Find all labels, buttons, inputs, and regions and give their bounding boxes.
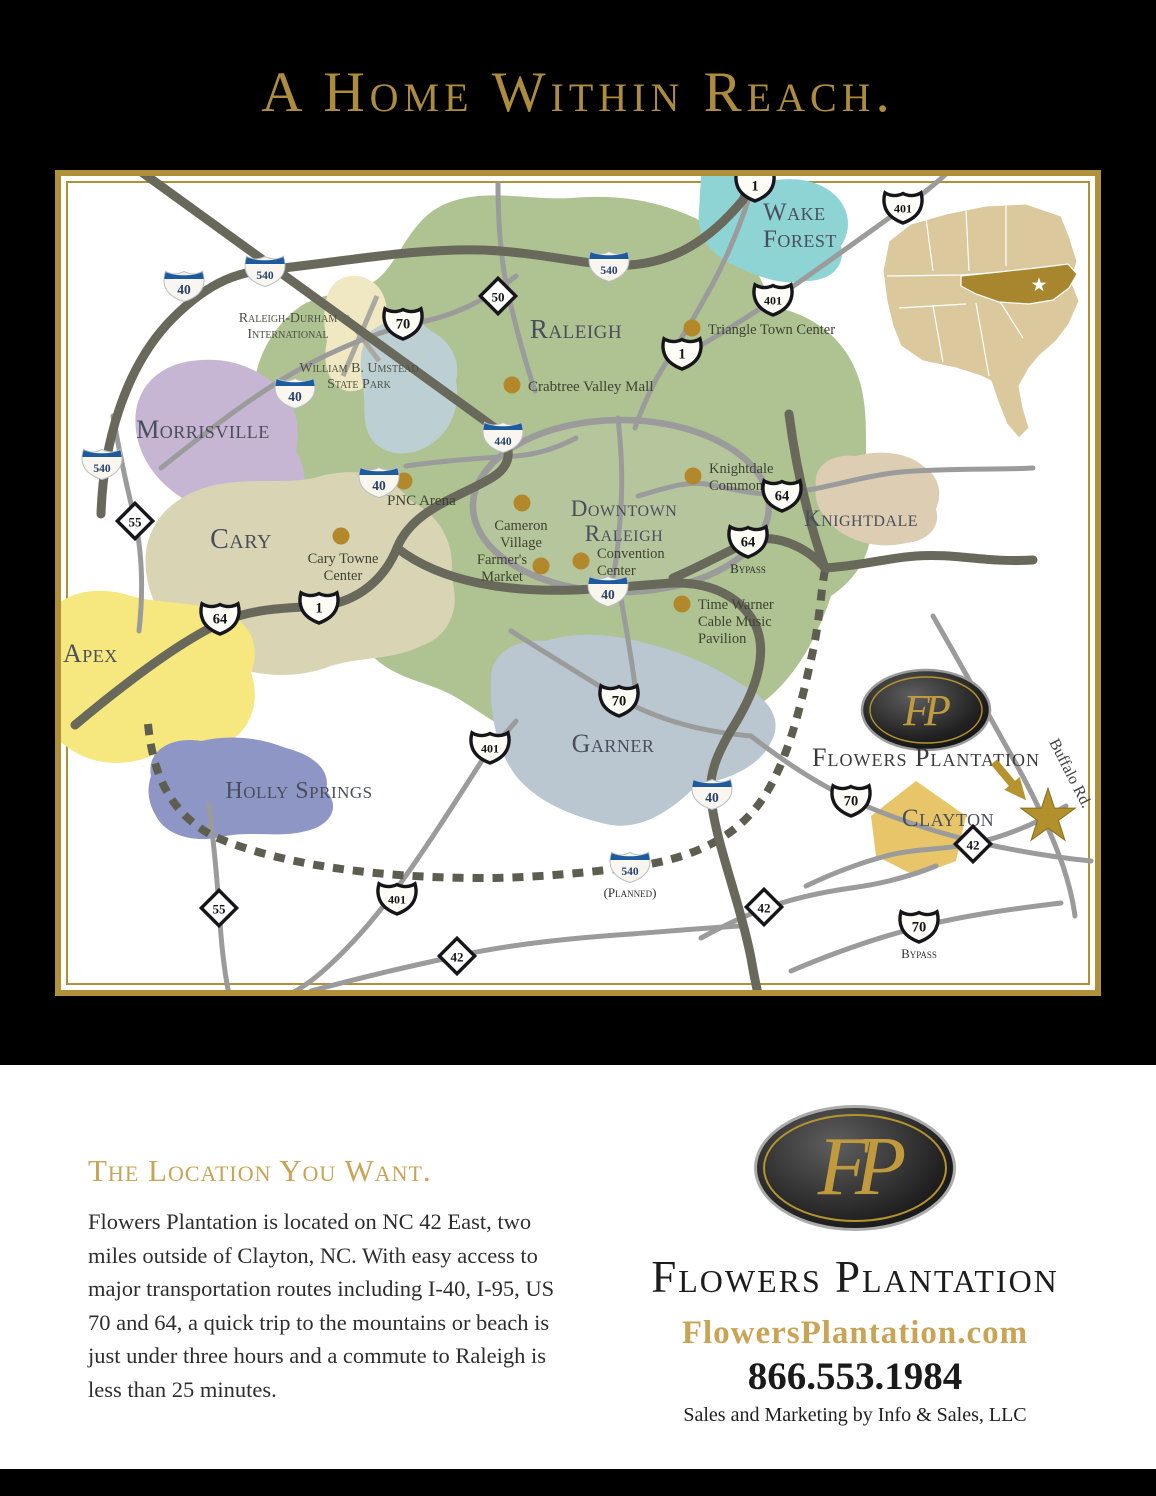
interstate-shield-40: 40 — [692, 779, 732, 809]
shield-sub-label: Bypass — [730, 561, 766, 576]
city-label: Raleigh — [585, 521, 663, 546]
shield-number: 540 — [256, 270, 274, 282]
interstate-shield-540: 540 — [82, 449, 122, 479]
poi-dot-icon — [514, 495, 531, 512]
shield-number: 64 — [741, 535, 756, 551]
location-block: The Location You Want. Flowers Plantatio… — [88, 1153, 568, 1406]
inset-land — [883, 204, 1079, 438]
poi-dot-icon — [533, 558, 550, 575]
shield-number: 1 — [315, 601, 322, 617]
shield-number: 1 — [678, 347, 685, 363]
poi-label: Market — [481, 569, 523, 585]
fp-map-label: Flowers Plantation — [812, 743, 1040, 772]
area-map: RaleighWakeForestMorrisvilleCaryApexHoll… — [61, 176, 1095, 990]
poi-dot-icon — [504, 377, 521, 394]
shield-number: 401 — [388, 893, 406, 907]
shield-number: 401 — [764, 294, 782, 308]
area-label: State Park — [327, 377, 392, 392]
nc-route-shield-55: 55 — [117, 503, 152, 538]
fp-monogram: FP — [902, 686, 950, 735]
city-label: Raleigh — [530, 314, 622, 344]
city-label: Garner — [572, 729, 655, 758]
interstate-shield-540: 540(Planned) — [604, 852, 657, 900]
shield-number: 1 — [751, 179, 758, 195]
brand-name: Flowers Plantation — [620, 1251, 1090, 1303]
city-label: Cary — [210, 524, 272, 555]
shield-number: 42 — [758, 901, 771, 916]
poi-label: Crabtree Valley Mall — [528, 379, 654, 395]
poi-label: Cameron — [494, 518, 548, 534]
poi-label: Center — [324, 568, 363, 584]
shield-number: 70 — [844, 794, 859, 810]
poi-label: PNC Arena — [387, 493, 456, 509]
shield-number: 401 — [894, 202, 912, 216]
shield-number: 540 — [600, 265, 618, 277]
page-title: A Home Within Reach. — [0, 60, 1156, 125]
shield-number: 64 — [775, 489, 790, 505]
poi-label: Convention — [597, 546, 665, 562]
shield-number: 440 — [494, 436, 512, 448]
city-label: Morrisville — [136, 415, 270, 444]
poi-dot-icon — [685, 468, 702, 485]
shield-number: 64 — [213, 612, 228, 628]
poi-dot-icon — [684, 320, 701, 337]
area-label: Raleigh-Durham — [239, 311, 338, 326]
poi-label: Cary Towne — [308, 551, 379, 567]
poi-dot-icon — [674, 596, 691, 613]
shield-number: 540 — [93, 463, 111, 475]
shield-sub-label: Bypass — [901, 946, 937, 961]
location-heading: The Location You Want. — [88, 1153, 568, 1189]
shield-number: 55 — [213, 902, 227, 917]
area-label: International — [247, 327, 328, 342]
fp-logo: FP — [754, 1105, 956, 1231]
nc-route-shield-42: 42 — [746, 889, 781, 924]
shield-number: 42 — [451, 950, 464, 965]
interstate-shield-540: 540 — [245, 256, 285, 286]
shield-number: 401 — [481, 742, 499, 756]
shield-number: 40 — [177, 282, 191, 297]
shield-number: 40 — [288, 389, 302, 404]
shield-number: 42 — [967, 838, 980, 853]
poi-label: Village — [500, 535, 542, 551]
shield-number: 40 — [601, 587, 615, 602]
shield-number: 40 — [705, 790, 719, 805]
map-panel: RaleighWakeForestMorrisvilleCaryApexHoll… — [55, 170, 1101, 996]
city-label: Forest — [763, 226, 837, 253]
poi-label: Knightdale — [709, 461, 773, 477]
poi-label: Pavilion — [698, 631, 747, 647]
inset-map — [883, 204, 1079, 438]
sales-line: Sales and Marketing by Info & Sales, LLC — [620, 1404, 1090, 1427]
road-label: Buffalo Rd. — [1045, 736, 1094, 811]
nc-route-shield-42: 42 — [439, 938, 474, 973]
shield-number: 540 — [621, 866, 639, 878]
page: A Home Within Reach. — [0, 0, 1156, 1496]
city-label: Downtown — [571, 496, 678, 521]
poi-label: Center — [597, 563, 636, 579]
phone-number: 866.553.1984 — [620, 1354, 1090, 1399]
brand-block: FP Flowers Plantation FlowersPlantation.… — [620, 1065, 1090, 1427]
poi-label: Cable Music — [698, 614, 772, 630]
city-label: Apex — [63, 639, 118, 668]
us-route-shield-70: 70 — [832, 786, 870, 816]
shield-number: 50 — [492, 290, 505, 305]
poi-label: Commons — [709, 478, 769, 494]
city-label: Holly Springs — [225, 778, 372, 804]
location-paragraph: Flowers Plantation is located on NC 42 E… — [88, 1205, 560, 1406]
area-label: William B. Umstead — [299, 361, 418, 376]
shield-number: 70 — [912, 920, 927, 936]
shield-number: 40 — [372, 478, 386, 493]
poi-label: Farmer's — [477, 552, 527, 568]
poi-label: Time Warner — [698, 597, 774, 613]
city-label: Wake — [763, 199, 826, 226]
poi-dot-icon — [573, 553, 590, 570]
nc-route-shield-55: 55 — [201, 890, 236, 925]
city-label: Clayton — [902, 805, 994, 832]
shield-sub-label: (Planned) — [604, 885, 657, 900]
bottom-section: The Location You Want. Flowers Plantatio… — [0, 1065, 1156, 1469]
us-route-shield-70: 70Bypass — [900, 912, 938, 961]
shield-number: 70 — [396, 317, 411, 333]
shield-number: 70 — [612, 694, 627, 710]
fp-logo-monogram: FP — [757, 1104, 953, 1230]
us-route-shield-401: 401 — [471, 733, 509, 763]
city-label: Knightdale — [804, 506, 918, 531]
shield-number: 55 — [129, 515, 143, 530]
poi-label: Triangle Town Center — [708, 322, 835, 338]
poi-dot-icon — [333, 528, 350, 545]
website-url: FlowersPlantation.com — [620, 1315, 1090, 1352]
